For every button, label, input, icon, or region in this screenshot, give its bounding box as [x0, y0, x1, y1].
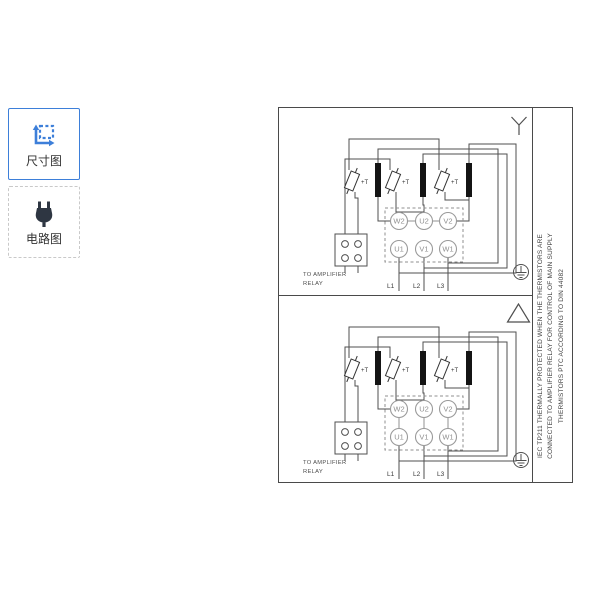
- plug-icon: [29, 199, 59, 229]
- diagrams-column: [279, 108, 532, 482]
- wiring-diagram-panel: IEC TP211 THERMALLY PROTECTED WHEN THE T…: [278, 107, 573, 483]
- side-note-text: IEC TP211 THERMALLY PROTECTED WHEN THE T…: [536, 181, 570, 482]
- dimension-view-button[interactable]: 尺寸图: [8, 108, 80, 180]
- delta-connection-diagram: [279, 296, 532, 483]
- dimension-icon: [29, 121, 59, 151]
- delta-symbol-icon: [508, 304, 530, 322]
- dimension-view-label: 尺寸图: [26, 155, 62, 167]
- side-note-line2: CONNECTED TO AMPLIFIER RELAY FOR CONTROL…: [546, 181, 556, 482]
- side-note-column: IEC TP211 THERMALLY PROTECTED WHEN THE T…: [532, 108, 572, 482]
- circuit-view-button[interactable]: 电路图: [8, 186, 80, 258]
- side-note-line1: IEC TP211 THERMALLY PROTECTED WHEN THE T…: [536, 181, 546, 482]
- sidebar: 尺寸图 电路图: [8, 108, 80, 264]
- circuit-view-label: 电路图: [26, 233, 62, 245]
- side-note-line3: THERMISTORS PTC ACCORDING TO DIN 44082: [556, 181, 566, 482]
- star-connection-diagram: [279, 108, 532, 296]
- delta-bridge-links: [399, 418, 448, 429]
- star-symbol-icon: [512, 117, 527, 135]
